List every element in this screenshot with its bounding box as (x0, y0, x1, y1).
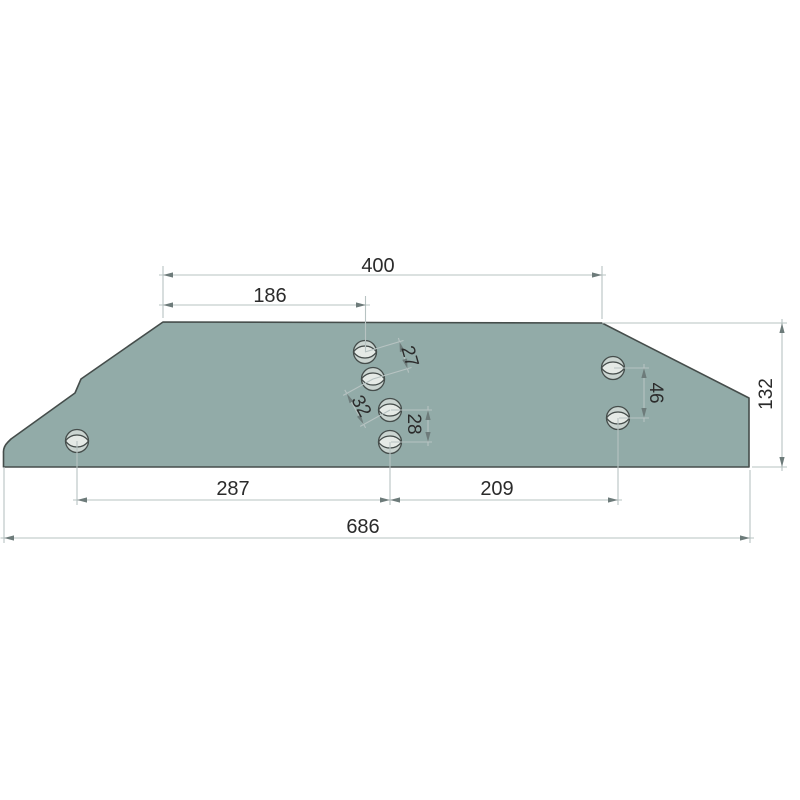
dim-287-label: 287 (216, 478, 249, 500)
drawing-area: 400 186 287 209 686 132 46 28 27 32 (0, 0, 800, 800)
dim-400-label: 400 (361, 255, 394, 277)
dim-28-label: 28 (403, 413, 424, 434)
technical-drawing: 400 186 287 209 686 132 46 28 27 32 (0, 0, 800, 800)
dim-209-label: 209 (480, 478, 513, 500)
plate-outline (3, 322, 749, 467)
dim-132-label: 132 (756, 378, 777, 410)
dim-46-label: 46 (645, 382, 666, 403)
dim-686-label: 686 (346, 516, 379, 538)
dim-186-label: 186 (253, 285, 286, 307)
